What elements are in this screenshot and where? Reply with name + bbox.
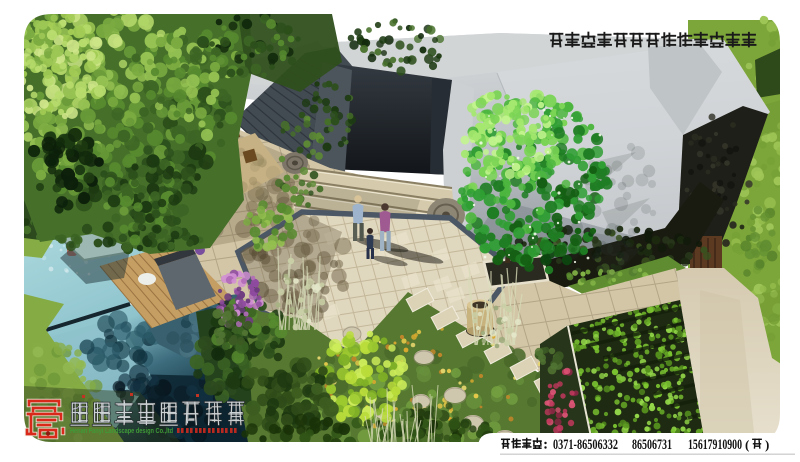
svg-text:15617910900: 15617910900 [688, 437, 742, 453]
svg-text:0371-86506332: 0371-86506332 [553, 437, 618, 453]
svg-text:(: ( [745, 437, 749, 452]
svg-text:Henan Fanyi Landscape design C: Henan Fanyi Landscape design Co.,ltd [70, 428, 173, 435]
svg-text:): ) [765, 437, 769, 452]
svg-text:86506731: 86506731 [632, 437, 672, 453]
